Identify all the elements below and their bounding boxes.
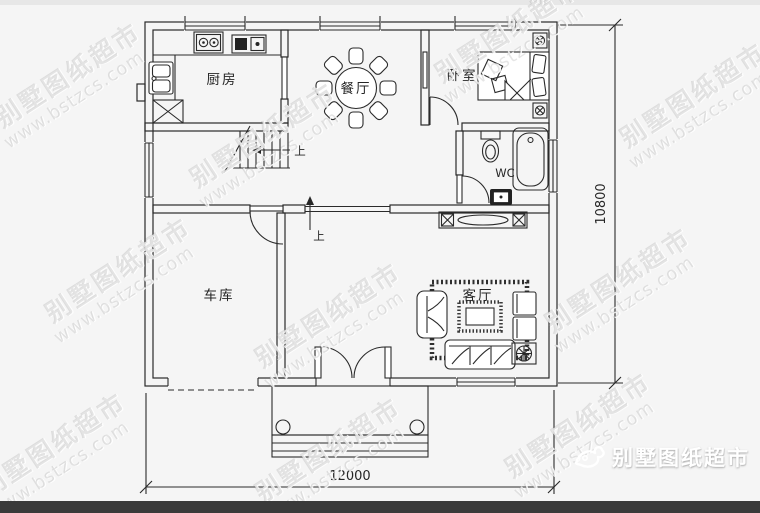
cooktop-unit	[232, 35, 266, 53]
stair-up-label-2: 上	[313, 229, 325, 243]
kitchen-door-panel	[282, 57, 287, 99]
bed	[478, 52, 549, 100]
garage-inner-door	[250, 206, 283, 244]
room-label-living: 客厅	[463, 287, 494, 304]
room-label-kitchen: 厨房	[207, 72, 238, 88]
dimension-right-value: 10800	[594, 183, 609, 224]
stairs	[224, 126, 314, 230]
tv-cabinet	[439, 212, 527, 228]
dimension-bottom-value: 12000	[329, 469, 370, 484]
floor-plan: 12000 10800 厨房 餐厅 卧室 WC 车库 客厅 上 上	[0, 0, 760, 513]
nightstand-bottom	[533, 103, 547, 118]
bedroom-wall-panel	[423, 52, 427, 88]
stove	[194, 32, 223, 53]
room-label-dining: 餐厅	[341, 81, 372, 97]
nightstand-top	[533, 33, 547, 48]
bathtub	[513, 128, 548, 190]
flue-block	[137, 84, 145, 101]
hall-beam	[305, 207, 390, 212]
bedroom-furniture	[478, 33, 549, 118]
wc-door	[457, 175, 489, 203]
stair-up-arrow-1	[252, 146, 290, 154]
porch	[272, 386, 428, 457]
stair-up-arrow-2	[306, 196, 314, 230]
brand-logo: 别墅图纸超市	[573, 441, 750, 473]
porch-column-left	[276, 420, 290, 434]
dimension-right: 10800	[558, 19, 623, 389]
coffee-table	[459, 302, 501, 331]
sofa	[445, 340, 515, 369]
toilet	[481, 131, 500, 162]
kitchen-sink	[149, 62, 173, 94]
footer-bar	[0, 501, 760, 513]
armchair	[417, 291, 447, 338]
dimension-bottom: 12000	[140, 390, 560, 494]
porch-column-right	[410, 420, 424, 434]
bird-swirl-icon	[573, 441, 605, 473]
doors	[168, 97, 489, 390]
floor-plan-page: 12000 10800 厨房 餐厅 卧室 WC 车库 客厅 上 上 别墅图纸超市…	[0, 0, 760, 513]
brand-logo-text: 别墅图纸超市	[612, 442, 750, 472]
washbasin	[490, 189, 512, 205]
refrigerator	[153, 100, 183, 123]
stair-break-line	[224, 126, 250, 173]
room-label-garage: 车库	[204, 287, 235, 304]
room-label-bedroom: 卧室	[447, 67, 478, 84]
porch-steps	[272, 435, 428, 457]
stair-up-label-1: 上	[294, 144, 306, 158]
plant-table	[512, 343, 536, 364]
room-label-wc: WC	[495, 166, 514, 180]
bedroom-door	[430, 97, 458, 125]
